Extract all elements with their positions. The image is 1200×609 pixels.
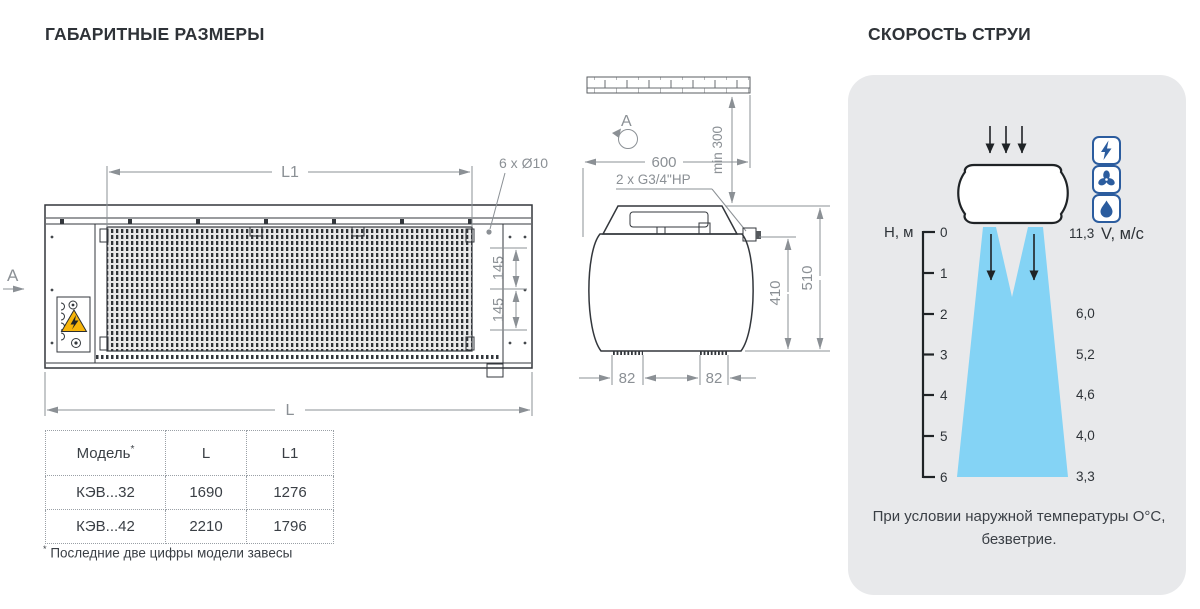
- front-view: L1 6 x Ø10 145 145 A L: [3, 155, 548, 419]
- scale-tick-5: 5: [940, 429, 948, 444]
- velocity-value-2m: 6,0: [1076, 306, 1095, 321]
- model-cell: КЭВ...42: [46, 510, 166, 544]
- caption-line-2: безветрие.: [858, 528, 1180, 551]
- table-row: КЭВ...32 1690 1276: [46, 476, 334, 510]
- view-a-label-side: A: [621, 113, 632, 130]
- dim-min300-label: min 300: [710, 126, 725, 174]
- scale-tick-0: 0: [940, 225, 948, 240]
- end-bracket: [487, 364, 503, 377]
- table-footnote: * Последние две цифры модели завесы: [43, 544, 292, 561]
- model-note-mark: *: [130, 444, 134, 455]
- holes-label: 6 x Ø10: [499, 155, 548, 171]
- velocity-value-4m: 4,6: [1076, 387, 1095, 402]
- air-jet-cone: [957, 227, 1068, 477]
- l-cell: 1690: [166, 476, 247, 510]
- side-view: A min 300 600 2 x G3/4"HP: [579, 77, 830, 387]
- velocity-value-3m: 5,2: [1076, 347, 1095, 362]
- col-header-l1: L1: [247, 431, 334, 476]
- high-voltage-warning-icon: [62, 310, 87, 332]
- height-axis-label: Н, м: [884, 224, 913, 241]
- l-cell: 2210: [166, 510, 247, 544]
- outlet-velocity-value: 11,3: [1069, 226, 1094, 241]
- col-header-l: L: [166, 431, 247, 476]
- table-row: КЭВ...42 2210 1796: [46, 510, 334, 544]
- jet-diagram: 0 1 2 3 4 5 6 Н, м 11,3 V, м/с 6,0 5,2 4…: [884, 126, 1144, 485]
- view-a-label-front: A: [7, 266, 19, 285]
- dim-l1-label: L1: [281, 164, 299, 181]
- dim-145-upper-label: 145: [491, 256, 507, 280]
- feature-icons: [1093, 137, 1120, 222]
- ceiling-hatch: [587, 77, 750, 93]
- dim-600-label: 600: [651, 154, 676, 171]
- unit-cross-section: [589, 206, 761, 353]
- dim-l-label: L: [286, 402, 295, 419]
- view-direction-icon: [619, 130, 638, 149]
- dim-82-left-label: 82: [619, 370, 636, 387]
- velocity-value-6m: 3,3: [1076, 469, 1095, 484]
- datasheet-page: ГАБАРИТНЫЕ РАЗМЕРЫ СКОРОСТЬ СТРУИ: [0, 0, 1200, 609]
- table-header-row: Модель* L L1: [46, 431, 334, 476]
- dim-82-right-label: 82: [706, 370, 723, 387]
- model-cell: КЭВ...32: [46, 476, 166, 510]
- air-curtain-pictogram: [958, 165, 1068, 223]
- l1-cell: 1276: [247, 476, 334, 510]
- velocity-axis-label: V, м/с: [1101, 225, 1144, 243]
- scale-tick-6: 6: [940, 470, 948, 485]
- dim-510-label: 510: [799, 265, 816, 290]
- jet-panel-caption: При условии наружной температуры О°С, бе…: [858, 505, 1180, 552]
- dim-145-lower-label: 145: [491, 298, 507, 322]
- scale-tick-3: 3: [940, 348, 948, 363]
- caption-line-1: При условии наружной температуры О°С,: [858, 505, 1180, 528]
- scale-tick-2: 2: [940, 307, 948, 322]
- col-header-model: Модель*: [46, 431, 166, 476]
- scale-tick-1: 1: [940, 266, 948, 281]
- l1-cell: 1796: [247, 510, 334, 544]
- electrical-box: [57, 297, 90, 352]
- dim-410-label: 410: [767, 280, 784, 305]
- pipe-connections-label: 2 x G3/4"HP: [616, 172, 691, 187]
- velocity-value-5m: 4,0: [1076, 428, 1095, 443]
- intake-grille: [107, 227, 472, 351]
- dimensions-table: Модель* L L1 КЭВ...32 1690 1276 КЭВ...42…: [45, 430, 334, 544]
- scale-tick-4: 4: [940, 388, 948, 403]
- mounting-hole: [486, 229, 491, 234]
